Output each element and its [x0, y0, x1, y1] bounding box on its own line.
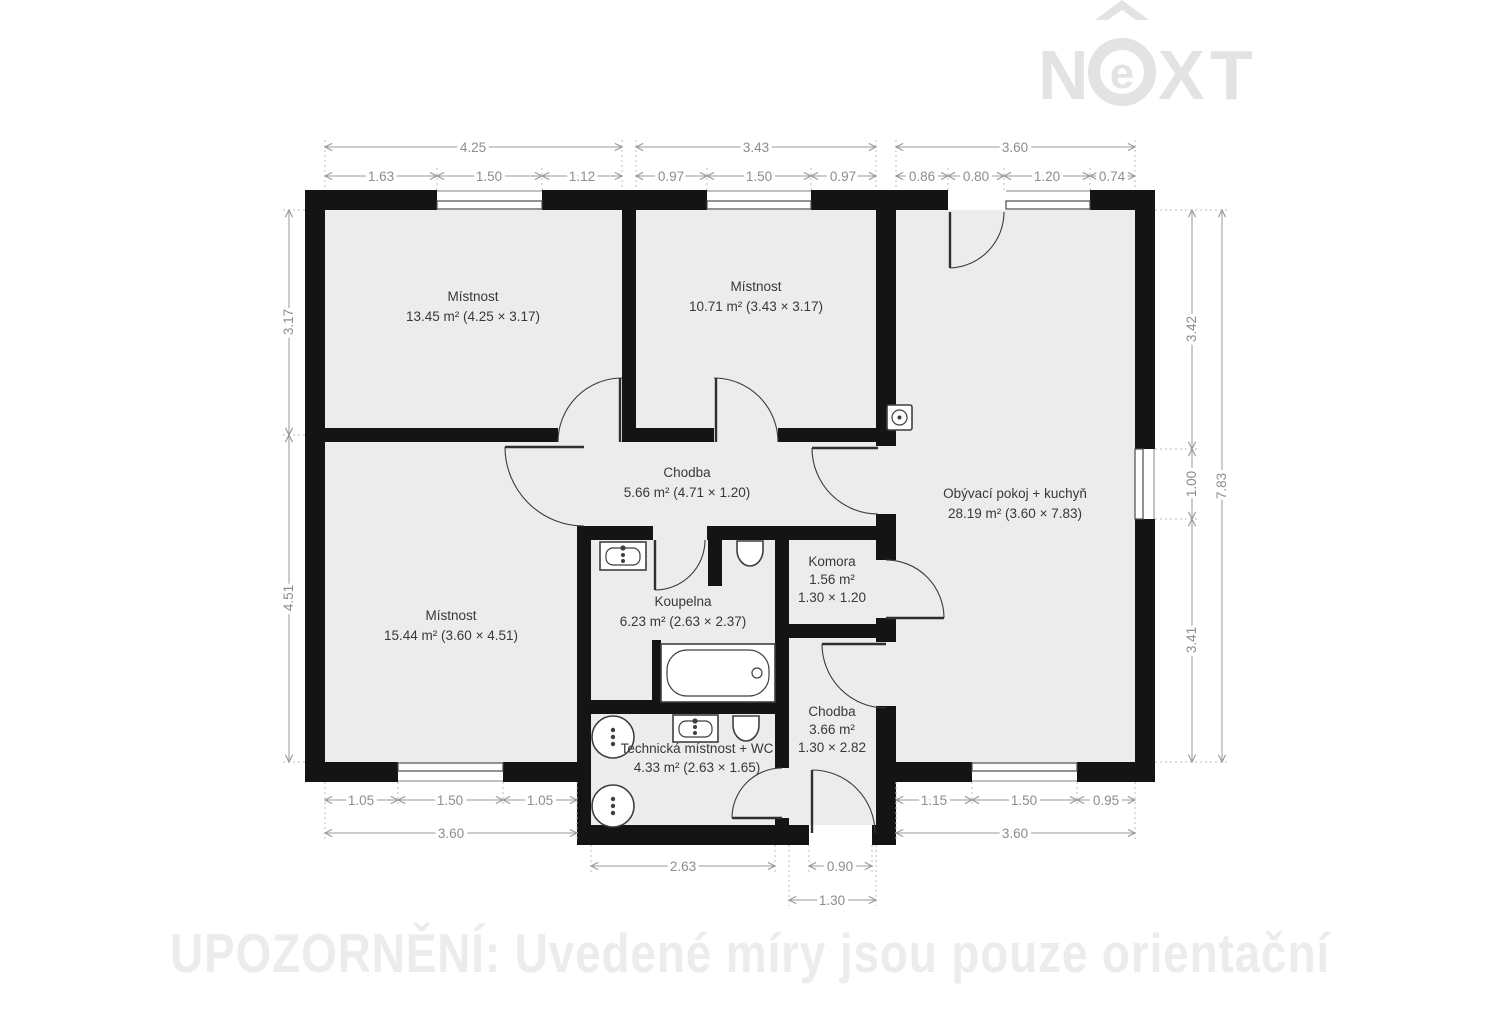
dim-label: 7.83	[1214, 473, 1229, 499]
svg-text:Obývací pokoj + kuchyň: Obývací pokoj + kuchyň	[943, 486, 1087, 501]
dim-label: 1.50	[476, 169, 502, 184]
dim-label: 0.97	[830, 169, 856, 184]
svg-text:1.56 m²: 1.56 m²	[809, 572, 855, 587]
dim-label: 3.60	[1002, 140, 1028, 155]
svg-text:Místnost: Místnost	[730, 279, 781, 294]
dim-label: 1.50	[437, 793, 463, 808]
toilet-icon	[733, 716, 759, 741]
dim-label: 1.00	[1184, 471, 1199, 497]
svg-text:Technická místnost + WC: Technická místnost + WC	[621, 741, 774, 756]
brand-logo: N e X T	[1038, 0, 1253, 114]
svg-text:Chodba: Chodba	[808, 704, 856, 719]
svg-text:1.30 × 2.82: 1.30 × 2.82	[798, 740, 866, 755]
svg-text:10.71 m² (3.43 × 3.17): 10.71 m² (3.43 × 3.17)	[689, 299, 823, 314]
logo-letter-x: X	[1158, 36, 1205, 114]
washing-machine-icon	[592, 785, 634, 827]
dim-label: 4.51	[281, 585, 296, 611]
window	[437, 191, 542, 209]
dim-label: 1.15	[921, 793, 947, 808]
svg-text:Místnost: Místnost	[425, 608, 476, 623]
floorplan-svg: N e X T	[0, 0, 1500, 1018]
sink-icon	[673, 715, 718, 742]
dim-label: 0.95	[1093, 793, 1119, 808]
toilet-icon	[737, 541, 763, 566]
svg-text:Místnost: Místnost	[447, 289, 498, 304]
watermark-notice: UPOZORNĚNÍ: Uvedené míry jsou pouze orie…	[170, 922, 1331, 984]
dim-label: 1.05	[527, 793, 553, 808]
svg-text:13.45 m² (4.25 × 3.17): 13.45 m² (4.25 × 3.17)	[406, 309, 540, 324]
svg-text:5.66 m² (4.71 × 1.20): 5.66 m² (4.71 × 1.20)	[624, 485, 750, 500]
svg-text:Komora: Komora	[808, 554, 856, 569]
dim-label: 1.63	[368, 169, 394, 184]
dim-label: 3.41	[1184, 627, 1199, 653]
dim-label: 0.74	[1099, 169, 1126, 184]
dim-label: 2.63	[670, 859, 696, 874]
logo-roof-icon	[1095, 0, 1149, 20]
dim-label: 3.60	[438, 826, 464, 841]
power-outlet-icon	[887, 405, 912, 430]
window	[972, 763, 1077, 781]
dim-label: 1.05	[348, 793, 374, 808]
svg-text:Chodba: Chodba	[663, 465, 711, 480]
dim-label: 0.80	[963, 169, 989, 184]
svg-text:3.66 m²: 3.66 m²	[809, 722, 855, 737]
sink-icon	[600, 542, 646, 570]
dim-label: 1.50	[746, 169, 772, 184]
dim-label: 1.50	[1011, 793, 1037, 808]
dim-label: 3.60	[1002, 826, 1028, 841]
dim-label: 3.42	[1184, 316, 1199, 342]
svg-text:15.44 m² (3.60 × 4.51): 15.44 m² (3.60 × 4.51)	[384, 628, 518, 643]
floorplan-page: N e X T	[0, 0, 1500, 1018]
window	[1135, 449, 1154, 519]
svg-text:Koupelna: Koupelna	[654, 594, 712, 609]
window	[398, 763, 503, 781]
logo-letter-t: T	[1210, 36, 1253, 114]
svg-text:6.23 m² (2.63 × 2.37): 6.23 m² (2.63 × 2.37)	[620, 614, 746, 629]
dim-label: 4.25	[460, 140, 486, 155]
dim-label: 0.86	[909, 169, 935, 184]
dim-label: 3.17	[281, 309, 296, 335]
window	[707, 191, 811, 209]
dim-label: 1.30	[819, 893, 845, 908]
svg-text:28.19 m² (3.60 × 7.83): 28.19 m² (3.60 × 7.83)	[948, 506, 1082, 521]
logo-letter-n: N	[1038, 36, 1089, 114]
dim-label: 1.20	[1034, 169, 1060, 184]
logo-letter-e: e	[1110, 49, 1134, 98]
dim-label: 1.12	[569, 169, 595, 184]
dim-label: 0.97	[658, 169, 684, 184]
svg-text:1.30 × 1.20: 1.30 × 1.20	[798, 590, 866, 605]
bathtub-icon	[661, 644, 775, 702]
dim-label: 3.43	[743, 140, 769, 155]
dim-label: 0.90	[827, 859, 853, 874]
window	[1006, 191, 1090, 209]
svg-text:4.33 m² (2.63 × 1.65): 4.33 m² (2.63 × 1.65)	[634, 760, 760, 775]
